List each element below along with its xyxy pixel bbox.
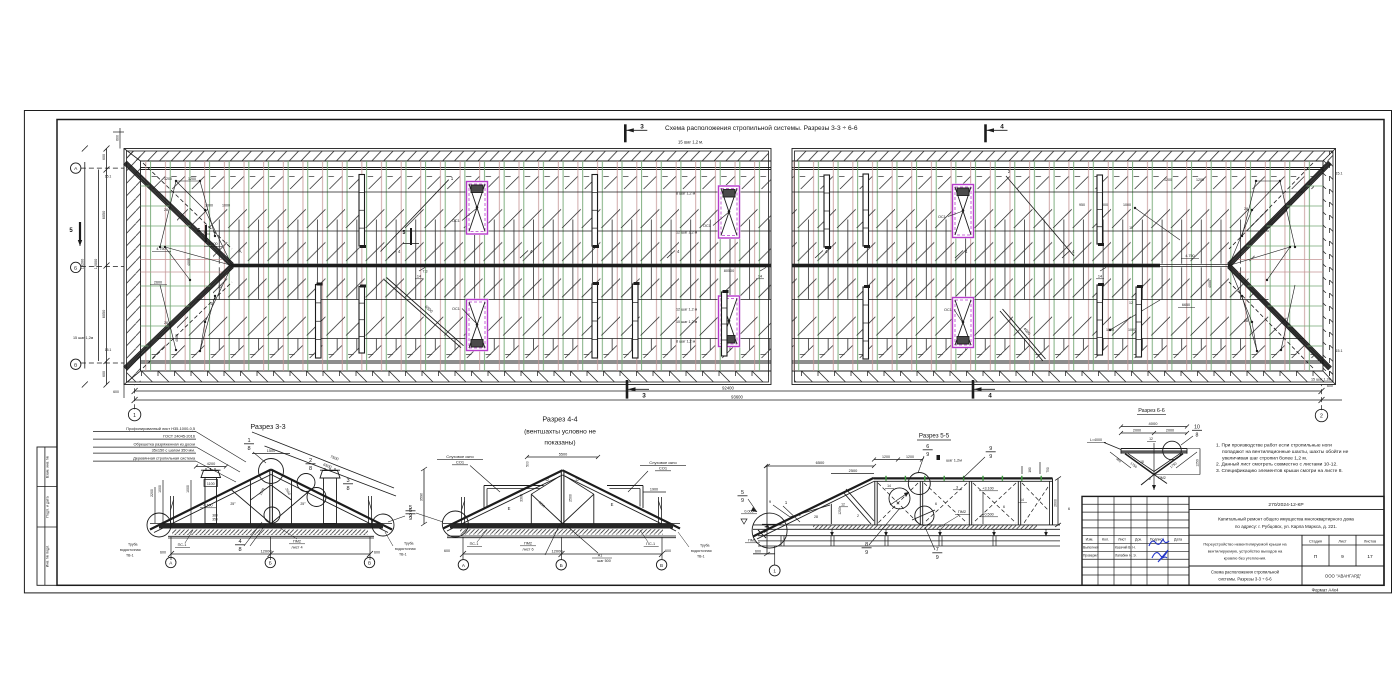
svg-text:Б: Б (269, 561, 272, 566)
svg-text:350: 350 (212, 518, 218, 522)
svg-text:ОС1: ОС1 (452, 219, 460, 223)
svg-text:1000: 1000 (205, 204, 213, 208)
svg-text:2000: 2000 (1166, 429, 1174, 433)
svg-text:6650: 6650 (1182, 303, 1190, 307)
svg-text:12: 12 (841, 503, 845, 507)
svg-text:600: 600 (444, 549, 450, 553)
svg-text:Переустройство невентилируемой: Переустройство невентилируемой крыши на (1203, 542, 1287, 547)
svg-text:1: 1 (133, 413, 136, 419)
svg-text:Труба: Труба (404, 542, 414, 546)
svg-text:1000: 1000 (1106, 328, 1114, 332)
svg-text:водосточная: водосточная (120, 548, 141, 552)
svg-text:1000: 1000 (186, 485, 190, 493)
svg-text:14: 14 (887, 484, 891, 488)
svg-text:6050: 6050 (102, 310, 106, 318)
svg-text:СО1: СО1 (456, 460, 465, 465)
svg-text:12 шаг 1,2 м: 12 шаг 1,2 м (676, 308, 698, 312)
svg-text:750: 750 (1046, 467, 1050, 473)
svg-text:Листов: Листов (1364, 540, 1376, 544)
svg-text:Инв. № подл.: Инв. № подл. (46, 545, 50, 567)
svg-text:5500: 5500 (559, 453, 567, 457)
svg-text:1. При производстве работ если: 1. При производстве работ если стропильн… (1216, 443, 1332, 449)
svg-text:Казачий В. Н.: Казачий В. Н. (1115, 546, 1136, 550)
svg-text:лист 4: лист 4 (291, 546, 302, 550)
svg-text:1000: 1000 (1123, 203, 1131, 207)
svg-text:17: 17 (1367, 554, 1373, 560)
svg-text:11: 11 (1129, 226, 1133, 230)
svg-text:9: 9 (1341, 554, 1344, 560)
svg-text:7.3: 7.3 (423, 270, 428, 274)
svg-text:L=4000: L=4000 (1090, 438, 1102, 442)
svg-text:1200: 1200 (164, 177, 172, 181)
svg-text:3590: 3590 (420, 493, 424, 501)
svg-text:4000: 4000 (1208, 280, 1212, 288)
svg-text:3: 3 (640, 124, 644, 131)
svg-text:1250: 1250 (838, 507, 842, 515)
svg-text:ПС-1: ПС-1 (178, 543, 187, 547)
svg-text:950: 950 (1079, 203, 1085, 207)
svg-text:14: 14 (1020, 498, 1024, 502)
svg-text:4: 4 (1000, 124, 1004, 131)
svg-text:600: 600 (1327, 384, 1333, 388)
svg-text:6050: 6050 (102, 211, 106, 219)
svg-text:Профилированный лист Н35-1000-: Профилированный лист Н35-1000-0,5 (126, 426, 195, 431)
svg-text:600: 600 (665, 549, 671, 553)
svg-text:8: 8 (247, 446, 250, 452)
svg-text:П: П (1314, 554, 1318, 560)
svg-text:4: 4 (988, 393, 992, 400)
svg-text:600: 600 (102, 154, 106, 160)
svg-text:28: 28 (164, 208, 168, 212)
svg-text:4000: 4000 (1149, 421, 1159, 426)
svg-text:ПС-1: ПС-1 (470, 542, 479, 546)
svg-text:ТВ-1: ТВ-1 (126, 554, 134, 558)
svg-text:6: 6 (1068, 507, 1070, 511)
svg-text:9: 9 (409, 513, 412, 519)
svg-text:3300: 3300 (520, 494, 524, 502)
svg-text:1250: 1250 (1196, 459, 1200, 467)
svg-text:Кол.: Кол. (1102, 538, 1109, 542)
svg-text:показаны): показаны) (544, 440, 575, 447)
svg-text:180: 180 (1028, 467, 1032, 473)
svg-text:2500: 2500 (849, 468, 858, 473)
svg-text:15.1: 15.1 (1336, 172, 1343, 176)
svg-text:1: 1 (773, 569, 776, 575)
svg-text:ПМ2: ПМ2 (1158, 476, 1166, 480)
svg-text:Труба: Труба (128, 543, 138, 547)
svg-text:14: 14 (758, 275, 762, 279)
svg-text:Док.: Док. (1135, 538, 1142, 542)
svg-text:500: 500 (526, 461, 530, 467)
svg-text:2600: 2600 (154, 281, 162, 285)
svg-text:Деревянная стропильная система: Деревянная стропильная система (133, 456, 196, 461)
svg-text:+0.500: +0.500 (982, 513, 993, 517)
svg-text:В: В (660, 563, 663, 568)
svg-text:Б: Б (560, 563, 563, 568)
svg-text:попадают на вентиляционные шах: попадают на вентиляционные шахты, шахты … (1222, 448, 1349, 455)
svg-text:1000: 1000 (1128, 328, 1136, 332)
svg-text:15.1: 15.1 (105, 348, 112, 352)
svg-text:8: 8 (346, 486, 349, 492)
svg-text:3. Спецификацию элементов крыш: 3. Спецификацию элементов крыши смотри н… (1216, 468, 1343, 474)
svg-text:11: 11 (210, 302, 214, 306)
svg-text:4.750: 4.750 (1185, 254, 1194, 258)
svg-text:1200: 1200 (906, 455, 914, 459)
svg-text:ПМ2: ПМ2 (524, 542, 532, 546)
svg-text:2. Данный лист смотреть совмес: 2. Данный лист смотреть совместно с лист… (1216, 461, 1338, 468)
svg-text:12: 12 (1149, 437, 1153, 441)
svg-text:3: 3 (956, 486, 958, 490)
svg-text:5: 5 (741, 490, 744, 496)
svg-text:4200: 4200 (207, 462, 215, 466)
svg-text:15 шаг 1,2м: 15 шаг 1,2м (1311, 378, 1332, 382)
svg-text:1: 1 (451, 176, 454, 181)
svg-text:25°: 25° (300, 502, 306, 506)
svg-text:Лист: Лист (1118, 538, 1126, 542)
svg-text:15.1: 15.1 (105, 175, 112, 179)
svg-text:13200: 13200 (81, 259, 85, 270)
svg-text:270/2024-12-КР: 270/2024-12-КР (1268, 502, 1303, 508)
svg-text:Обрешетка разряженная из доски: Обрешетка разряженная из доски (133, 442, 195, 447)
svg-text:2200: 2200 (150, 489, 154, 497)
svg-text:4.100: 4.100 (203, 504, 212, 508)
svg-text:8: 8 (238, 547, 241, 553)
svg-text:шаг 500: шаг 500 (597, 559, 611, 563)
svg-text:8: 8 (865, 542, 868, 548)
svg-text:600: 600 (102, 371, 106, 377)
svg-text:(вентшахты условно не: (вентшахты условно не (524, 429, 596, 436)
svg-text:1500: 1500 (267, 449, 275, 453)
svg-text:5: 5 (198, 228, 201, 234)
svg-text:7.500: 7.500 (208, 242, 217, 246)
svg-text:9: 9 (989, 446, 992, 452)
svg-text:12000: 12000 (94, 259, 98, 270)
svg-text:1: 1 (247, 438, 250, 444)
svg-text:28: 28 (1244, 319, 1248, 323)
svg-text:1000: 1000 (158, 485, 162, 493)
svg-text:2: 2 (1320, 414, 1323, 420)
svg-text:СО1: СО1 (659, 466, 668, 471)
svg-text:5: 5 (409, 505, 412, 511)
svg-text:увеличивая шаг стропил более 1: увеличивая шаг стропил более 1,2 м. (1222, 455, 1307, 461)
svg-text:4: 4 (238, 539, 241, 545)
svg-text:ОС1: ОС1 (703, 224, 711, 228)
svg-text:1200: 1200 (1164, 178, 1172, 182)
svg-text:8: 8 (1196, 433, 1199, 439)
svg-text:14: 14 (1098, 275, 1102, 279)
svg-text:80500: 80500 (724, 269, 735, 273)
svg-text:1100: 1100 (207, 482, 215, 486)
svg-text:28: 28 (814, 515, 818, 519)
svg-text:Лапабин Н. Э.: Лапабин Н. Э. (1115, 554, 1137, 558)
svg-text:ПС-1: ПС-1 (646, 542, 655, 546)
svg-text:6: 6 (935, 502, 937, 506)
svg-text:Слуховое окно: Слуховое окно (446, 454, 474, 459)
svg-text:ПМ1: ПМ1 (748, 539, 756, 543)
svg-text:Взам. инв. №: Взам. инв. № (46, 456, 50, 478)
svg-text:Б: Б (74, 266, 77, 272)
svg-text:1200: 1200 (188, 177, 196, 181)
svg-text:Дата: Дата (1174, 538, 1182, 542)
svg-text:10 шаг 1,2 м: 10 шаг 1,2 м (676, 320, 698, 324)
svg-text:Схема расположения стропильной: Схема расположения стропильной (1211, 570, 1280, 575)
svg-text:18: 18 (1140, 460, 1144, 464)
svg-text:Формат А4х4: Формат А4х4 (1312, 587, 1339, 592)
svg-text:12: 12 (575, 478, 579, 482)
svg-text:600: 600 (755, 549, 761, 553)
svg-text:кровлю без утепления.: кровлю без утепления. (1224, 556, 1266, 561)
svg-text:12: 12 (1129, 301, 1133, 305)
svg-text:ОС1: ОС1 (452, 307, 460, 311)
svg-text:9: 9 (989, 454, 992, 460)
svg-text:15.1: 15.1 (1336, 349, 1343, 353)
svg-text:лист 6: лист 6 (522, 548, 533, 552)
svg-text:2: 2 (799, 513, 801, 517)
svg-text:9: 9 (865, 550, 868, 556)
svg-text:14: 14 (417, 275, 421, 279)
svg-text:2000: 2000 (1133, 429, 1141, 433)
svg-text:Схема расположения стропильной: Схема расположения стропильной системы. … (665, 124, 858, 132)
svg-text:15 шаг 1,2 м.: 15 шаг 1,2 м. (678, 140, 703, 145)
svg-text:15 шаг 1,2м: 15 шаг 1,2м (73, 336, 94, 340)
svg-text:Выполнил: Выполнил (1083, 546, 1099, 550)
svg-text:Разрез 6-6: Разрез 6-6 (1138, 408, 1164, 414)
svg-text:12: 12 (218, 285, 222, 289)
svg-text:шаг 1,2м: шаг 1,2м (946, 458, 962, 463)
svg-text:600: 600 (374, 551, 380, 555)
svg-text:ОС1: ОС1 (938, 215, 946, 219)
svg-text:9: 9 (741, 498, 744, 504)
svg-text:8 шаг 1,2 м: 8 шаг 1,2 м (676, 192, 696, 196)
svg-text:1200: 1200 (1196, 178, 1204, 182)
svg-text:28: 28 (164, 321, 168, 325)
svg-text:Капитальный ремонт общего имущ: Капитальный ремонт общего имущества мног… (1218, 516, 1354, 522)
svg-text:ТВ-1: ТВ-1 (399, 553, 407, 557)
svg-text:ПМ2: ПМ2 (958, 509, 966, 514)
svg-text:Проверил: Проверил (1083, 554, 1098, 558)
svg-text:5: 5 (403, 230, 406, 236)
svg-text:1900: 1900 (650, 488, 658, 492)
svg-text:ООО "АВАНГАРД": ООО "АВАНГАРД" (1325, 574, 1362, 579)
svg-text:Разрез 4-4: Разрез 4-4 (542, 415, 577, 424)
svg-text:Стадия: Стадия (1309, 540, 1322, 544)
svg-text:6: 6 (1003, 505, 1005, 509)
svg-text:600: 600 (160, 551, 166, 555)
svg-text:Изм.: Изм. (1086, 538, 1094, 542)
svg-text:8 шаг 1,2 м: 8 шаг 1,2 м (676, 340, 696, 344)
svg-text:Разрез 3-3: Разрез 3-3 (250, 422, 285, 431)
svg-text:600: 600 (116, 135, 120, 141)
svg-text:2: 2 (1149, 477, 1151, 481)
svg-text:4000: 4000 (175, 334, 179, 342)
svg-text:Е: Е (611, 502, 614, 507)
svg-text:92400: 92400 (722, 386, 734, 391)
svg-text:2: 2 (309, 458, 312, 464)
svg-text:6500: 6500 (816, 460, 825, 465)
svg-text:0.000: 0.000 (744, 510, 753, 514)
svg-text:ГОСТ 24045-2016: ГОСТ 24045-2016 (163, 434, 195, 439)
svg-text:водосточная: водосточная (691, 549, 712, 553)
svg-text:28: 28 (1244, 207, 1248, 211)
svg-text:2500: 2500 (569, 494, 573, 502)
svg-text:93600: 93600 (731, 395, 743, 400)
svg-text:+3.100: +3.100 (982, 487, 993, 491)
svg-text:по адресу: г. Рубцовск, ул. Ка: по адресу: г. Рубцовск, ул. Карла Маркса… (1235, 524, 1337, 529)
svg-text:25°: 25° (230, 502, 236, 506)
svg-text:ПМ2: ПМ2 (293, 540, 301, 544)
svg-text:600: 600 (113, 390, 119, 394)
svg-text:системы. Разрезы 3-3 ÷ 6-6: системы. Разрезы 3-3 ÷ 6-6 (1218, 577, 1272, 582)
svg-text:1200: 1200 (882, 455, 890, 459)
svg-text:водосточная: водосточная (395, 547, 416, 551)
svg-text:35х150 с шагом 350 мм.: 35х150 с шагом 350 мм. (152, 448, 195, 453)
svg-text:вентилируемую, устройство выхо: вентилируемую, устройство выходов на (1208, 549, 1283, 554)
svg-text:12: 12 (545, 478, 549, 482)
svg-text:Е: Е (508, 506, 511, 511)
svg-text:9: 9 (936, 555, 939, 561)
svg-text:Лист: Лист (1338, 540, 1347, 544)
svg-text:2600: 2600 (1054, 499, 1058, 507)
svg-text:4.750: 4.750 (156, 247, 165, 251)
svg-text:3: 3 (642, 393, 646, 400)
svg-text:9: 9 (926, 452, 929, 458)
svg-text:2: 2 (857, 514, 859, 518)
svg-text:3: 3 (346, 478, 349, 484)
svg-text:Слуховое окно: Слуховое окно (649, 460, 677, 465)
svg-text:ТВ-1: ТВ-1 (697, 555, 705, 559)
svg-text:В: В (368, 561, 371, 566)
svg-text:А1: А1 (598, 554, 603, 558)
svg-text:7: 7 (936, 547, 939, 553)
svg-text:ОС1: ОС1 (944, 308, 952, 312)
svg-text:6: 6 (926, 444, 929, 450)
svg-text:4000: 4000 (187, 258, 191, 266)
svg-text:В: В (74, 362, 77, 368)
svg-text:1000: 1000 (222, 204, 230, 208)
svg-text:Подп. и дата: Подп. и дата (46, 496, 50, 517)
svg-text:10: 10 (1194, 425, 1200, 431)
svg-text:12 шаг 1,2 м: 12 шаг 1,2 м (676, 231, 698, 235)
svg-text:8: 8 (309, 466, 312, 472)
svg-text:Труба: Труба (700, 544, 710, 548)
svg-text:Разрез 5-5: Разрез 5-5 (919, 433, 950, 440)
